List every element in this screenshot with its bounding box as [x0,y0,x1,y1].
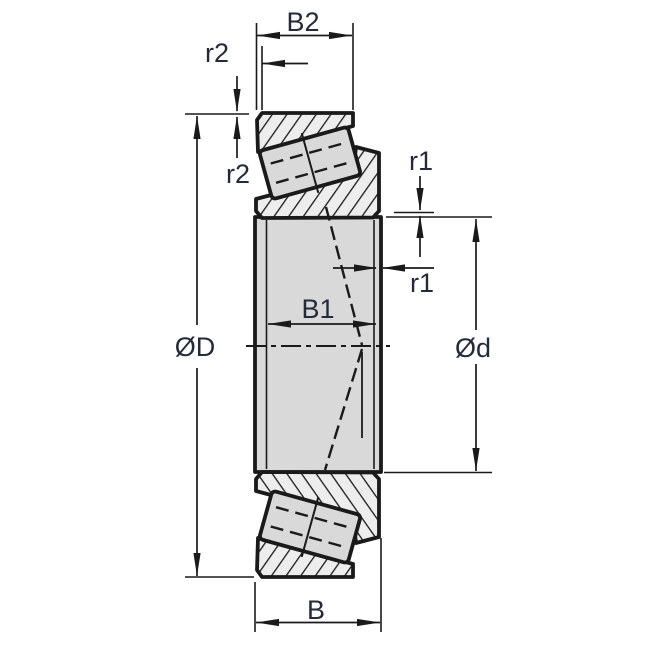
label-r1-vertical: r1 [409,146,433,176]
label-r2-vertical: r2 [226,159,250,189]
label-bore-diameter: Ød [455,333,491,363]
bearing-drawing-canvas: B2 r2 r2 ØD Ød [0,0,670,670]
label-b: B [307,595,325,625]
label-b2: B2 [286,7,319,37]
label-b1: B1 [301,294,334,324]
label-r2-horizontal: r2 [205,38,229,68]
label-outer-diameter: ØD [175,332,216,362]
label-r1-horizontal: r1 [410,268,434,298]
bearing-cross-section-diagram: B2 r2 r2 ØD Ød [0,0,670,670]
